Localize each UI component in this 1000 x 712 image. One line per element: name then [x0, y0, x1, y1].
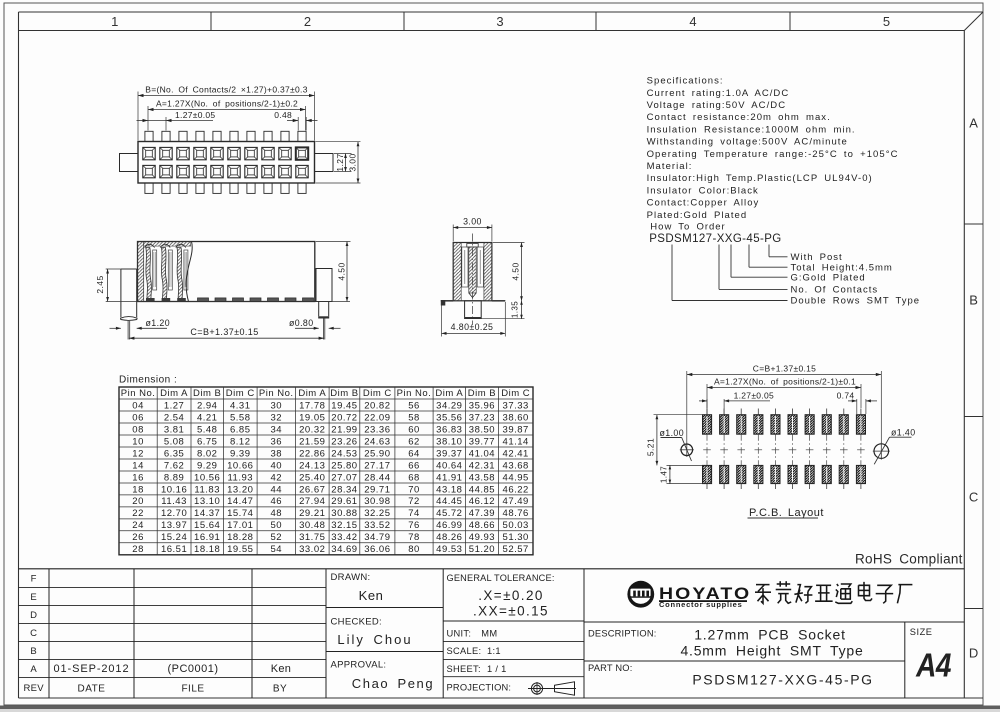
svg-text:16.91: 16.91: [194, 532, 220, 543]
svg-text:30.88: 30.88: [331, 508, 357, 519]
svg-text:PART NO:: PART NO:: [588, 663, 632, 673]
svg-text:33.52: 33.52: [364, 520, 390, 531]
svg-text:36.06: 36.06: [364, 544, 390, 555]
svg-text:31.75: 31.75: [299, 532, 325, 543]
svg-text:2.45: 2.45: [95, 275, 105, 293]
svg-text:10: 10: [132, 436, 144, 447]
svg-text:6.75: 6.75: [197, 436, 218, 447]
svg-text:80: 80: [408, 544, 420, 555]
svg-text:30.98: 30.98: [364, 496, 390, 507]
svg-text:34.69: 34.69: [331, 544, 357, 555]
svg-text:11.43: 11.43: [161, 496, 187, 507]
svg-text:2.54: 2.54: [164, 412, 185, 423]
svg-text:Dim C: Dim C: [363, 388, 392, 399]
svg-text:39.87: 39.87: [503, 424, 529, 435]
svg-text:PROJECTION:: PROJECTION:: [447, 682, 512, 692]
svg-text:8.02: 8.02: [197, 448, 218, 459]
svg-text:38: 38: [270, 448, 282, 459]
svg-text:6.35: 6.35: [164, 448, 185, 459]
svg-text:36.83: 36.83: [436, 424, 462, 435]
svg-text:25.80: 25.80: [331, 460, 357, 471]
svg-text:34.79: 34.79: [364, 532, 390, 543]
svg-text:MM: MM: [481, 628, 497, 638]
svg-text:7.62: 7.62: [164, 460, 185, 471]
svg-text:22.09: 22.09: [364, 412, 390, 423]
svg-text:C=B+1.37±0.15: C=B+1.37±0.15: [753, 363, 816, 373]
svg-text:PSDSM127-XXG-45-PG: PSDSM127-XXG-45-PG: [692, 672, 873, 688]
svg-text:Operating Temperature range:-2: Operating Temperature range:-25°C to +10…: [647, 149, 899, 160]
svg-text:44.45: 44.45: [436, 496, 462, 507]
svg-text:A: A: [30, 664, 37, 675]
svg-text:60: 60: [408, 424, 420, 435]
svg-text:5: 5: [883, 14, 890, 29]
svg-text:DRAWN:: DRAWN:: [331, 572, 371, 583]
svg-text:21.99: 21.99: [331, 424, 357, 435]
svg-text:Chao Peng: Chao Peng: [352, 676, 434, 691]
svg-text:8.89: 8.89: [164, 472, 185, 483]
svg-text:28.34: 28.34: [331, 484, 357, 495]
svg-text:Insulator:High Temp.Plastic(LC: Insulator:High Temp.Plastic(LCP UL94V-0): [647, 173, 873, 184]
svg-text:3: 3: [496, 14, 503, 29]
svg-text:C: C: [30, 628, 37, 639]
svg-text:41.04: 41.04: [469, 448, 495, 459]
svg-text:REV: REV: [23, 683, 44, 694]
svg-text:Specifications:: Specifications:: [647, 76, 724, 87]
svg-text:A: A: [969, 116, 978, 131]
svg-text:B=(No. Of Contacts/2 ×1.27)+0.: B=(No. Of Contacts/2 ×1.27)+0.37±0.3: [145, 84, 308, 94]
svg-text:Dim A: Dim A: [160, 388, 188, 399]
svg-text:48.26: 48.26: [436, 532, 462, 543]
svg-text:20: 20: [132, 496, 144, 507]
svg-text:4.5mm Height SMT Type: 4.5mm Height SMT Type: [680, 643, 863, 659]
svg-text:3.00: 3.00: [348, 153, 358, 171]
svg-text:1: 1: [111, 14, 118, 29]
svg-text:32: 32: [270, 412, 282, 423]
svg-text:1 / 1: 1 / 1: [487, 664, 507, 674]
svg-text:10.16: 10.16: [161, 484, 187, 495]
svg-text:58: 58: [408, 412, 420, 423]
svg-text:26: 26: [132, 532, 144, 543]
svg-text:30.48: 30.48: [299, 520, 325, 531]
svg-text:26.67: 26.67: [299, 484, 325, 495]
svg-text:9.29: 9.29: [197, 460, 218, 471]
svg-text:34: 34: [270, 424, 282, 435]
svg-text:23.36: 23.36: [364, 424, 390, 435]
svg-text:72: 72: [408, 496, 420, 507]
svg-text:42: 42: [270, 472, 282, 483]
svg-text:SHEET:: SHEET:: [447, 664, 481, 674]
svg-text:ø1.20: ø1.20: [146, 318, 171, 328]
svg-text:With Post: With Post: [791, 252, 843, 263]
svg-text:17.78: 17.78: [299, 400, 325, 411]
svg-text:19.05: 19.05: [299, 412, 325, 423]
svg-text:4: 4: [689, 14, 696, 29]
svg-text:13.10: 13.10: [194, 496, 220, 507]
svg-text:49.53: 49.53: [436, 544, 462, 555]
svg-text:11.93: 11.93: [227, 472, 253, 483]
svg-text:0.74: 0.74: [837, 390, 855, 400]
svg-text:16.51: 16.51: [161, 544, 187, 555]
svg-text:Pin No.: Pin No.: [397, 388, 432, 399]
svg-text:34.29: 34.29: [436, 400, 462, 411]
svg-text:10.66: 10.66: [227, 460, 253, 471]
svg-text:44.85: 44.85: [469, 484, 495, 495]
svg-text:Withstanding voltage:500V AC/m: Withstanding voltage:500V AC/minute: [647, 137, 848, 148]
svg-text:PSDSM127-XXG-45-PG: PSDSM127-XXG-45-PG: [649, 233, 781, 245]
svg-text:Dim B: Dim B: [193, 388, 221, 399]
svg-text:4.50: 4.50: [510, 262, 520, 280]
svg-text:78: 78: [408, 532, 420, 543]
svg-text:Voltage rating:50V AC/DC: Voltage rating:50V AC/DC: [647, 100, 787, 111]
svg-text:Dim A: Dim A: [298, 388, 326, 399]
svg-text:E: E: [30, 592, 37, 603]
svg-text:27.17: 27.17: [364, 460, 390, 471]
svg-text:.X=±0.20: .X=±0.20: [478, 588, 544, 603]
svg-text:(PC0001): (PC0001): [167, 663, 218, 675]
svg-text:52: 52: [270, 532, 282, 543]
svg-text:15.64: 15.64: [194, 520, 220, 531]
svg-text:6.85: 6.85: [230, 424, 251, 435]
svg-text:No. Of Contacts: No. Of Contacts: [791, 285, 879, 296]
svg-text:Connector supplies: Connector supplies: [659, 600, 743, 609]
svg-text:32.15: 32.15: [331, 520, 357, 531]
svg-text:47.39: 47.39: [469, 508, 495, 519]
svg-text:Dim C: Dim C: [226, 388, 255, 399]
svg-text:20.32: 20.32: [299, 424, 325, 435]
svg-text:1:1: 1:1: [487, 646, 501, 656]
svg-text:Dimension :: Dimension :: [119, 375, 177, 386]
svg-text:30: 30: [270, 400, 282, 411]
svg-text:46.99: 46.99: [436, 520, 462, 531]
svg-text:.XX=±0.15: .XX=±0.15: [473, 604, 549, 619]
svg-text:37.33: 37.33: [503, 400, 529, 411]
svg-text:19.55: 19.55: [227, 544, 253, 555]
svg-text:12.70: 12.70: [161, 508, 187, 519]
svg-text:D: D: [969, 646, 978, 661]
svg-text:12: 12: [132, 448, 144, 459]
svg-text:32.25: 32.25: [364, 508, 390, 519]
svg-text:28.44: 28.44: [364, 472, 390, 483]
svg-text:Material:: Material:: [647, 161, 693, 172]
svg-text:20.72: 20.72: [331, 412, 357, 423]
svg-text:33.02: 33.02: [299, 544, 325, 555]
svg-text:44: 44: [270, 484, 282, 495]
svg-text:C=B+1.37±0.15: C=B+1.37±0.15: [190, 327, 258, 337]
svg-text:24.63: 24.63: [364, 436, 390, 447]
svg-text:0.48: 0.48: [274, 110, 292, 120]
svg-text:F: F: [31, 574, 37, 585]
svg-text:1.35: 1.35: [510, 301, 519, 318]
svg-text:G:Gold Plated: G:Gold Plated: [791, 272, 866, 283]
svg-text:43.18: 43.18: [436, 484, 462, 495]
svg-text:24: 24: [132, 520, 144, 531]
svg-text:44.95: 44.95: [503, 472, 529, 483]
svg-text:04: 04: [132, 400, 144, 411]
svg-text:FILE: FILE: [181, 684, 204, 695]
svg-text:BY: BY: [273, 684, 287, 695]
svg-text:A=1.27X(No. of positions/2-1)±: A=1.27X(No. of positions/2-1)±0.2: [156, 98, 298, 108]
svg-text:3.00: 3.00: [463, 216, 482, 226]
svg-text:38.50: 38.50: [469, 424, 495, 435]
svg-text:Ken: Ken: [359, 588, 384, 603]
svg-text:APPROVAL:: APPROVAL:: [331, 659, 387, 670]
svg-text:4.31: 4.31: [230, 400, 251, 411]
svg-text:Dim A: Dim A: [435, 388, 463, 399]
svg-text:16: 16: [132, 472, 144, 483]
svg-text:Double Rows SMT Type: Double Rows SMT Type: [791, 296, 921, 307]
svg-text:43.68: 43.68: [503, 460, 529, 471]
svg-text:35.96: 35.96: [469, 400, 495, 411]
svg-text:B: B: [30, 646, 37, 657]
svg-text:39.77: 39.77: [469, 436, 495, 447]
svg-text:56: 56: [408, 400, 420, 411]
svg-text:Lily Chou: Lily Chou: [337, 632, 412, 647]
svg-text:29.21: 29.21: [299, 508, 325, 519]
svg-text:SCALE:: SCALE:: [447, 646, 482, 656]
svg-text:24.53: 24.53: [331, 448, 357, 459]
svg-text:42.31: 42.31: [469, 460, 495, 471]
svg-text:27.07: 27.07: [331, 472, 357, 483]
svg-text:62: 62: [408, 436, 420, 447]
svg-text:3.81: 3.81: [164, 424, 185, 435]
svg-text:25.40: 25.40: [299, 472, 325, 483]
svg-text:ø1.40: ø1.40: [891, 428, 916, 438]
svg-text:4.50: 4.50: [336, 262, 346, 280]
svg-text:14.37: 14.37: [194, 508, 220, 519]
svg-text:22: 22: [132, 508, 144, 519]
svg-text:8.12: 8.12: [230, 436, 251, 447]
svg-text:14: 14: [132, 460, 144, 471]
svg-text:A=1.27X(No. of positions/2-1)±: A=1.27X(No. of positions/2-1)±0.1: [714, 376, 856, 386]
svg-text:1.27: 1.27: [164, 400, 185, 411]
svg-text:4.21: 4.21: [197, 412, 218, 423]
svg-text:19.45: 19.45: [331, 400, 357, 411]
svg-text:Plated:Gold Plated: Plated:Gold Plated: [647, 210, 748, 221]
svg-text:38.60: 38.60: [503, 412, 529, 423]
svg-text:42.41: 42.41: [503, 448, 529, 459]
svg-text:5.58: 5.58: [230, 412, 251, 423]
svg-text:66: 66: [408, 460, 420, 471]
svg-text:DATE: DATE: [78, 684, 106, 695]
svg-text:24.13: 24.13: [299, 460, 325, 471]
svg-text:46.22: 46.22: [503, 484, 529, 495]
svg-text:1.27±0.05: 1.27±0.05: [175, 110, 215, 120]
svg-text:35.56: 35.56: [436, 412, 462, 423]
svg-text:41.14: 41.14: [503, 436, 529, 447]
svg-text:18: 18: [132, 484, 144, 495]
svg-text:33.42: 33.42: [331, 532, 357, 543]
svg-text:48.76: 48.76: [503, 508, 529, 519]
svg-text:40.64: 40.64: [436, 460, 462, 471]
svg-text:64: 64: [408, 448, 420, 459]
svg-text:DESCRIPTION:: DESCRIPTION:: [588, 628, 657, 638]
svg-text:Pin No.: Pin No.: [121, 388, 156, 399]
svg-text:29.71: 29.71: [364, 484, 390, 495]
svg-text:51.20: 51.20: [469, 544, 495, 555]
svg-text:29.61: 29.61: [331, 496, 357, 507]
svg-text:48: 48: [270, 508, 282, 519]
svg-text:C: C: [969, 490, 978, 505]
svg-text:5.21: 5.21: [645, 438, 655, 456]
svg-text:51.30: 51.30: [503, 532, 529, 543]
svg-text:Dim C: Dim C: [501, 388, 530, 399]
svg-text:68: 68: [408, 472, 420, 483]
svg-text:5.48: 5.48: [197, 424, 218, 435]
svg-text:ø1.00: ø1.00: [660, 428, 685, 438]
svg-text:37.23: 37.23: [469, 412, 495, 423]
svg-text:Insulation Resistance:1000M oh: Insulation Resistance:1000M ohm min.: [647, 124, 856, 135]
svg-text:SIZE: SIZE: [910, 627, 933, 637]
svg-text:17.01: 17.01: [227, 520, 253, 531]
svg-text:14.47: 14.47: [227, 496, 253, 507]
svg-text:08: 08: [132, 424, 144, 435]
svg-text:Dim B: Dim B: [468, 388, 496, 399]
svg-text:36: 36: [270, 436, 282, 447]
svg-text:27.94: 27.94: [299, 496, 325, 507]
svg-text:76: 76: [408, 520, 420, 531]
svg-text:48.66: 48.66: [469, 520, 495, 531]
svg-text:54: 54: [270, 544, 282, 555]
svg-text:47.49: 47.49: [503, 496, 529, 507]
svg-text:1.47: 1.47: [660, 466, 669, 483]
svg-text:39.37: 39.37: [436, 448, 462, 459]
svg-text:2: 2: [304, 14, 311, 29]
svg-text:52.57: 52.57: [503, 544, 529, 555]
svg-text:RoHS Compliant: RoHS Compliant: [855, 552, 963, 567]
svg-text:38.10: 38.10: [436, 436, 462, 447]
svg-text:46: 46: [270, 496, 282, 507]
svg-text:Contact:Copper Alloy: Contact:Copper Alloy: [647, 198, 760, 209]
svg-text:CHECKED:: CHECKED:: [331, 617, 383, 628]
svg-text:Current rating:1.0A AC/DC: Current rating:1.0A AC/DC: [647, 88, 790, 99]
svg-text:UNIT:: UNIT:: [447, 628, 472, 638]
svg-text:Dim B: Dim B: [330, 388, 358, 399]
svg-text:20.82: 20.82: [364, 400, 390, 411]
svg-text:11.83: 11.83: [194, 484, 220, 495]
svg-text:50: 50: [270, 520, 282, 531]
svg-text:18.28: 18.28: [227, 532, 253, 543]
svg-text:5.08: 5.08: [164, 436, 185, 447]
svg-text:22.86: 22.86: [299, 448, 325, 459]
svg-text:1.27±0.05: 1.27±0.05: [734, 390, 774, 400]
svg-text:Pin No.: Pin No.: [259, 388, 294, 399]
svg-text:23.26: 23.26: [331, 436, 357, 447]
svg-text:13.97: 13.97: [161, 520, 187, 531]
svg-text:10.56: 10.56: [194, 472, 220, 483]
svg-text:45.72: 45.72: [436, 508, 462, 519]
svg-text:1.27: 1.27: [335, 153, 345, 171]
svg-text:D: D: [30, 610, 37, 621]
svg-text:49.93: 49.93: [469, 532, 495, 543]
svg-text:Contact resistance:20m ohm max: Contact resistance:20m ohm max.: [647, 112, 831, 123]
svg-text:1.27mm PCB Socket: 1.27mm PCB Socket: [694, 627, 846, 643]
svg-text:4.80±0.25: 4.80±0.25: [451, 322, 494, 332]
svg-text:P.C.B. Layout: P.C.B. Layout: [749, 507, 824, 519]
svg-text:06: 06: [132, 412, 144, 423]
svg-text:15.74: 15.74: [227, 508, 253, 519]
svg-text:2.94: 2.94: [197, 400, 218, 411]
svg-text:21.59: 21.59: [299, 436, 325, 447]
svg-text:70: 70: [408, 484, 420, 495]
svg-text:74: 74: [408, 508, 420, 519]
svg-text:How To Order: How To Order: [650, 221, 725, 232]
svg-text:A4: A4: [915, 646, 951, 684]
svg-text:GENERAL TOLERANCE:: GENERAL TOLERANCE:: [447, 573, 555, 583]
svg-text:9.39: 9.39: [230, 448, 251, 459]
svg-text:B: B: [969, 293, 978, 308]
svg-text:40: 40: [270, 460, 282, 471]
svg-text:01-SEP-2012: 01-SEP-2012: [54, 663, 130, 675]
svg-text:13.20: 13.20: [227, 484, 253, 495]
svg-text:18.18: 18.18: [194, 544, 220, 555]
svg-text:28: 28: [132, 544, 144, 555]
svg-text:ø0.80: ø0.80: [289, 318, 314, 328]
svg-text:Insulator Color:Black: Insulator Color:Black: [647, 185, 759, 196]
svg-text:46.12: 46.12: [469, 496, 495, 507]
svg-text:41.91: 41.91: [436, 472, 462, 483]
svg-text:15.24: 15.24: [161, 532, 187, 543]
svg-text:43.58: 43.58: [469, 472, 495, 483]
svg-text:25.90: 25.90: [364, 448, 390, 459]
svg-text:50.03: 50.03: [503, 520, 529, 531]
svg-text:Ken: Ken: [271, 663, 291, 675]
